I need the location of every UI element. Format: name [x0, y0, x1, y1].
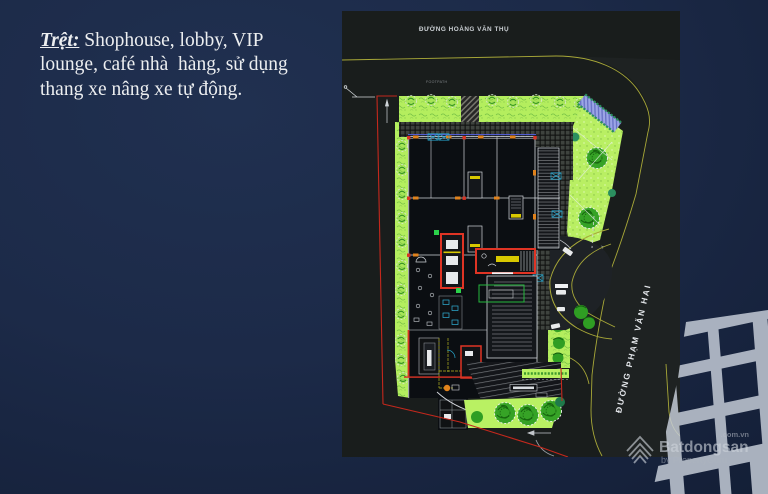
- svg-text:.com.vn: .com.vn: [721, 430, 750, 439]
- svg-text:Batdongsan: Batdongsan: [659, 439, 749, 456]
- svg-text:by PropertyGuru: by PropertyGuru: [661, 455, 727, 465]
